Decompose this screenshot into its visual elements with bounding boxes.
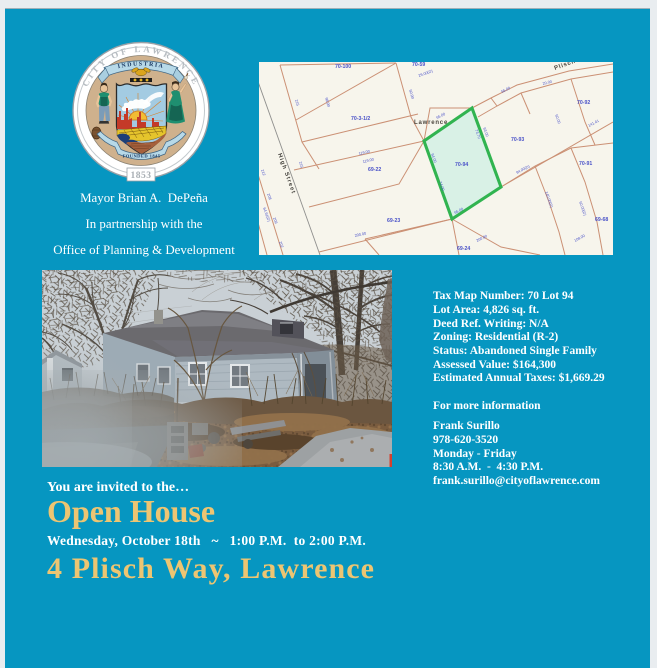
- svg-text:69-24: 69-24: [457, 246, 470, 252]
- svg-text:70-94: 70-94: [455, 162, 468, 168]
- svg-text:Lawrence: Lawrence: [414, 120, 448, 126]
- svg-text:70-92: 70-92: [577, 100, 590, 106]
- svg-text:1853: 1853: [131, 171, 152, 181]
- svg-text:70-100: 70-100: [335, 64, 351, 70]
- svg-text:70-91: 70-91: [579, 161, 592, 167]
- svg-text:69-68: 69-68: [595, 217, 608, 223]
- svg-text:70-93: 70-93: [511, 137, 524, 143]
- svg-text:70-3-1/2: 70-3-1/2: [351, 116, 370, 122]
- svg-text:FOUNDED 1845: FOUNDED 1845: [123, 154, 161, 159]
- svg-text:70-59: 70-59: [412, 62, 425, 68]
- svg-text:69-22: 69-22: [368, 167, 381, 173]
- svg-text:69-23: 69-23: [387, 218, 400, 224]
